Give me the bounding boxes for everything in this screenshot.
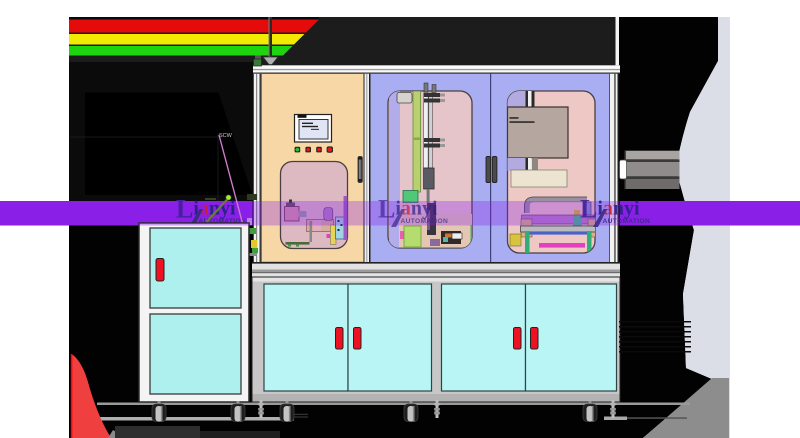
svg-text:AUTOMATION: AUTOMATION <box>401 218 449 225</box>
svg-text:SCW: SCW <box>219 133 233 139</box>
svg-text:AUTOMATION: AUTOMATION <box>603 218 651 225</box>
